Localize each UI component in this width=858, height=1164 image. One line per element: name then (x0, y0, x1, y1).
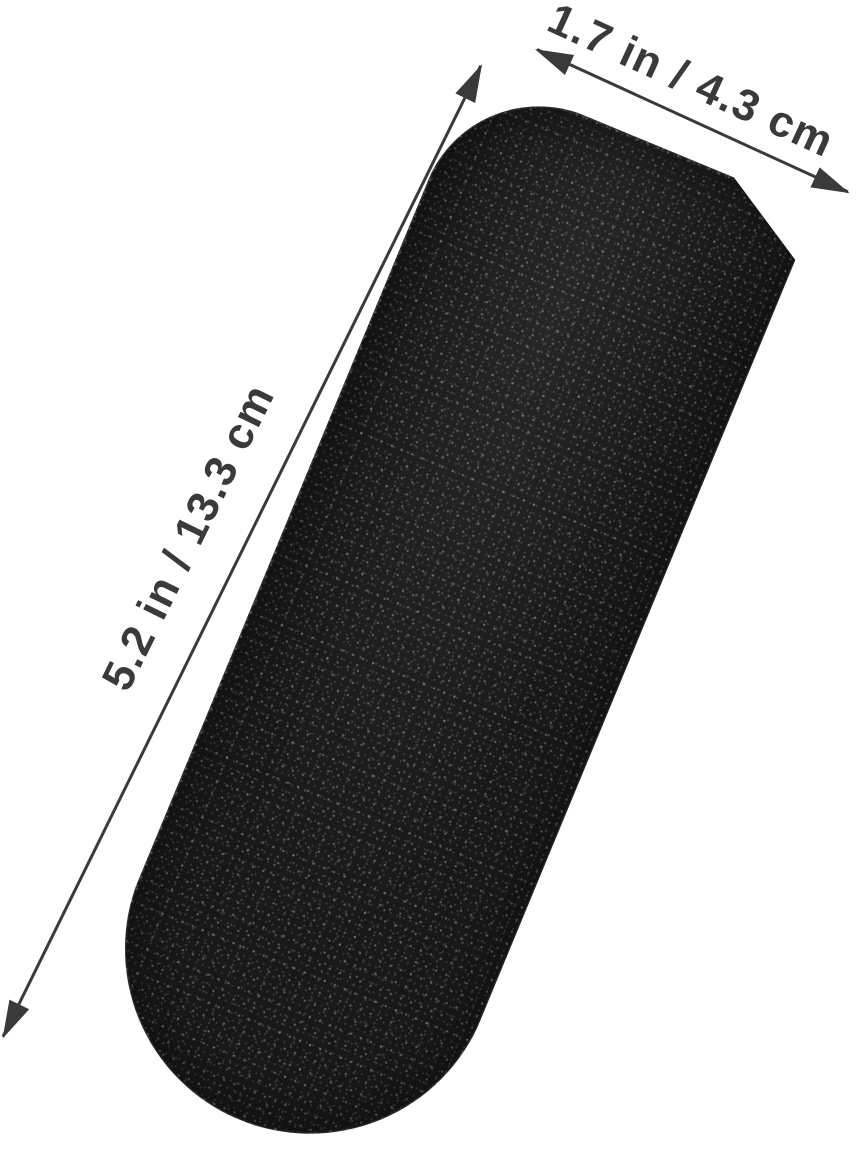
product-photo-canvas: 1.7 in / 4.3 cm 5.2 in / 13.3 cm (0, 0, 858, 1164)
arrowhead-right-icon (811, 167, 855, 203)
abrasive-pad (68, 70, 815, 1164)
arrowhead-top-icon (455, 59, 492, 103)
arrowhead-bottom-icon (0, 999, 29, 1043)
